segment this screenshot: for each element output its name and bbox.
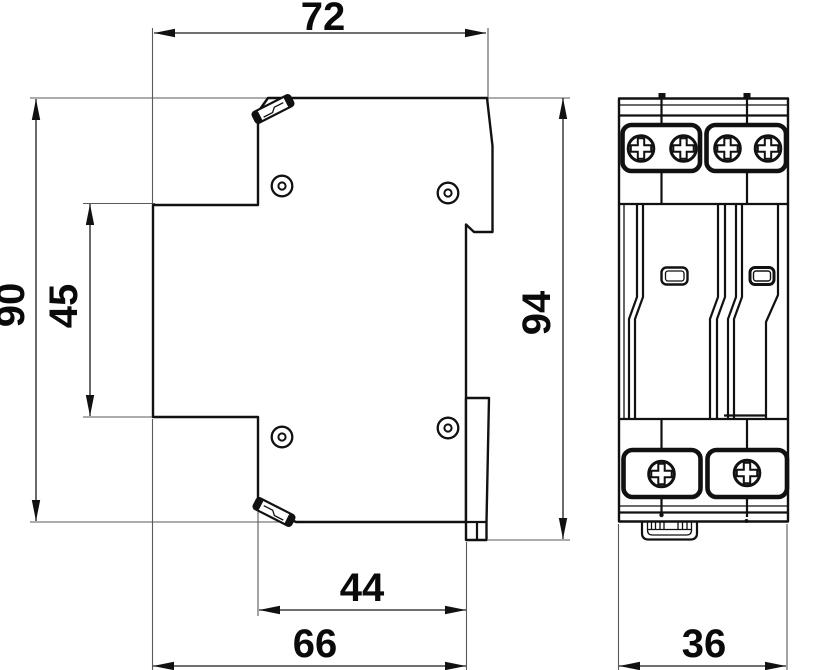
dimension-front-step-height: 45 — [42, 204, 94, 416]
screw-icon — [755, 136, 781, 162]
side-view — [153, 94, 493, 540]
screw-icon — [649, 461, 675, 487]
dim-label-66: 66 — [293, 622, 338, 666]
dim-label-44: 44 — [340, 566, 385, 610]
dim-label-45: 45 — [42, 284, 86, 329]
technical-drawing-page: 72 90 45 94 44 — [0, 0, 822, 670]
dim-label-36: 36 — [682, 622, 727, 666]
side-view-body-outline — [153, 98, 493, 522]
screw-icon — [734, 460, 760, 486]
dimension-top-width: 72 — [154, 0, 486, 39]
dimension-rear-overall-height: 94 — [515, 98, 567, 539]
dim-label-94: 94 — [515, 290, 559, 335]
indicator-window — [750, 268, 774, 285]
top-tab-icon — [744, 93, 751, 99]
indicator-window — [662, 268, 688, 285]
screw-icon — [671, 136, 697, 162]
rivet-icon — [272, 176, 293, 197]
front-view — [619, 93, 788, 540]
dim-label-72: 72 — [301, 0, 346, 39]
rivet-icon — [438, 183, 459, 204]
rivet-icon — [272, 427, 293, 448]
dimension-bottom-step-width: 44 — [259, 566, 466, 614]
dimension-front-view-width: 36 — [619, 622, 786, 670]
screw-icon — [715, 136, 741, 162]
dim-label-90: 90 — [0, 283, 33, 328]
din-clip — [642, 522, 697, 540]
dimension-bottom-overall-width: 66 — [153, 622, 466, 670]
top-tab-icon — [659, 93, 666, 99]
rivet-icon — [438, 418, 459, 439]
screw-icon — [628, 136, 654, 162]
drawing-canvas: 72 90 45 94 44 — [0, 0, 822, 670]
dimension-overall-height-left: 90 — [0, 99, 40, 521]
side-view-rear-panel — [466, 398, 489, 540]
